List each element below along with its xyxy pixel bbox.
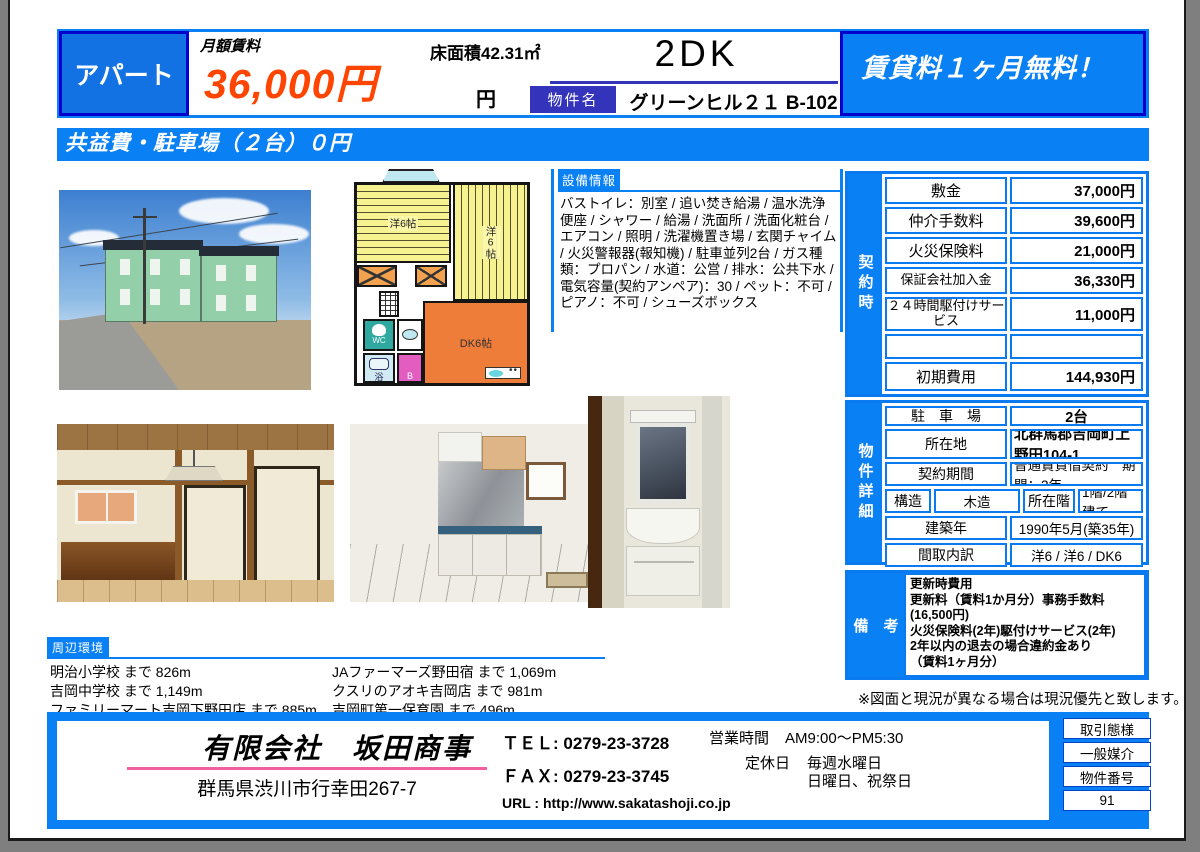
company-name: 有限会社 坂田商事 (157, 727, 517, 767)
counter-edge (438, 526, 542, 534)
fee-value: 11,000円 (1010, 297, 1143, 331)
lower-cabinets (438, 534, 542, 576)
detail-label: 建築年 (885, 516, 1007, 540)
fee-label: 火災保険料 (885, 237, 1007, 264)
fee-value: 39,600円 (1010, 207, 1143, 234)
closed-label: 定休日 (745, 752, 790, 773)
detail-label: 間取内訳 (885, 543, 1007, 567)
property-no-label: 物件番号 (1063, 766, 1151, 787)
table-row: 駐 車 場 2台 (885, 406, 1143, 426)
fee-value: 144,930円 (1010, 362, 1143, 391)
property-no-value: 91 (1063, 790, 1151, 811)
deal-type-label: 取引態様 (1063, 718, 1151, 739)
windows (206, 265, 272, 281)
detail-label: 所在地 (885, 429, 1007, 459)
table-row: 所在地 北群馬郡吉岡町上野田104-1 (885, 429, 1143, 459)
contract-fee-table: 契約時 敷金 37,000円 仲介手数料 39,600円 火災保険料 21,00… (845, 171, 1149, 397)
windows (206, 295, 272, 311)
room-dk: DK6帖 (423, 301, 527, 383)
surroundings-item: 吉岡中学校 まで 1,149m (50, 682, 317, 701)
bath-label: 浴 (374, 372, 383, 382)
hours-value: AM9:00～PM5:30 (785, 727, 903, 748)
ceiling (57, 424, 334, 450)
table-row: ２４時間駆付けサービス 11,000円 (885, 297, 1143, 331)
remarks-line: 2年以内の退去の場合違約金あり (910, 639, 1140, 655)
wall (702, 396, 722, 608)
apartment-building (105, 248, 201, 322)
surroundings-item: クスリのアオキ吉岡店 まで 981m (332, 682, 556, 701)
table-row: 火災保険料 21,000円 (885, 237, 1143, 264)
wc-label: WC (372, 336, 385, 345)
light-cord (193, 450, 195, 466)
vanity-mirror (636, 423, 690, 503)
surroundings-underline (47, 657, 605, 659)
property-name-tag: 物件名 (530, 86, 616, 113)
wash-basin (626, 508, 700, 544)
table-row: 初期費用 144,930円 (885, 362, 1143, 391)
floor-plan: 洋6帖 洋6帖 DK6帖 WC 浴 B (350, 167, 552, 393)
company-address: 群馬県渋川市行幸田267-7 (157, 774, 457, 801)
backsplash (438, 460, 524, 528)
detail-label: 駐 車 場 (885, 406, 1007, 426)
website-url: URL : http://www.sakatashoji.co.jp (502, 795, 731, 811)
detail-value: 洋6 / 洋6 / DK6 (1010, 543, 1143, 567)
detail-value: 1990年5月(築35年) (1010, 516, 1143, 540)
detail-value: 北群馬郡吉岡町上野田104-1 (1010, 429, 1143, 459)
floor-area: 床面積42.31㎡ (430, 39, 541, 64)
equipment-tag: 設備情報 (558, 169, 620, 190)
window (75, 490, 137, 524)
yen-label: 円 (476, 83, 496, 112)
room-label: 洋6帖 (482, 226, 501, 259)
equipment-text: バストイレ：別室 / 追い焚き給湯 / 温水洗浄便座 / シャワー / 給湯 /… (560, 196, 838, 312)
kitchen-window (526, 462, 566, 500)
sliding-door (184, 485, 246, 584)
remarks-line: （賃料1ヶ月分） (910, 655, 1140, 671)
table-row: 建築年 1990年5月(築35年) (885, 516, 1143, 540)
wood-post (247, 450, 254, 582)
closed-value: 日曜日、祝祭日 (807, 770, 912, 791)
cloud (179, 198, 269, 224)
layout-underline (550, 81, 838, 84)
vanity-light (630, 410, 696, 423)
fee-value: 21,000円 (1010, 237, 1143, 264)
surroundings-tag-label: 周辺環境 (52, 639, 104, 656)
exterior-photo (59, 190, 311, 390)
washroom-photo (588, 396, 730, 608)
room-label: DK6帖 (458, 335, 494, 351)
fee-label: 初期費用 (885, 362, 1007, 391)
shoe-box-icon (379, 291, 399, 317)
hours-label: 営業時間 (709, 727, 769, 748)
equipment-underline (558, 190, 840, 192)
closet-icon (357, 265, 397, 287)
details-side-header: 物件詳細 (848, 403, 882, 562)
remarks-side-label: 備 考 (853, 615, 898, 636)
washbasin-room (397, 319, 423, 351)
surroundings-item: JAファーマーズ野田宿 まで 1,069m (332, 663, 556, 682)
disclaimer-note: ※図面と現況が異なる場合は現況優先と致します。 (858, 688, 1186, 709)
detail-value: 普通賃貸借契約 期間：2年 (1010, 462, 1143, 486)
detail-label: 契約期間 (885, 462, 1007, 486)
bath-room: 浴 (363, 353, 395, 383)
floor-plan-body: 洋6帖 洋6帖 DK6帖 WC 浴 B (354, 182, 530, 386)
remarks-line: 火災保険料(2年)駆付けサービス(2年) (910, 624, 1140, 640)
remarks-line: 更新時費用 (910, 577, 1140, 593)
windows (110, 259, 196, 275)
company-underline (127, 767, 487, 770)
windows (110, 289, 196, 305)
adjacent-room-floor (61, 542, 175, 582)
room-west1: 洋6帖 (357, 185, 451, 263)
detail-value: 2台 (1010, 406, 1143, 426)
closet-icon (415, 265, 447, 287)
tel-number: ＴＥＬ: 0279-23-3728 (502, 729, 669, 754)
details-rows: 駐 車 場 2台 所在地 北群馬郡吉岡町上野田104-1 契約期間 普通賃貸借契… (882, 403, 1146, 562)
fee-label: 敷金 (885, 177, 1007, 204)
kitchen-sink-icon (485, 367, 521, 379)
fee-label (885, 334, 1007, 359)
table-row: 仲介手数料 39,600円 (885, 207, 1143, 234)
pendant-light (165, 466, 223, 481)
interior-room-photo (57, 424, 334, 602)
details-side-label: 物件詳細 (855, 443, 876, 523)
wall (602, 396, 624, 608)
detail-value: 1階/2階建て (1078, 489, 1143, 513)
remarks-side-header: 備 考 (848, 573, 904, 677)
sliding-door (254, 466, 320, 586)
flyer-page: アパート 月額賃料 36,000円 床面積42.31㎡ 円 2DK 物件名 グリ… (8, 0, 1186, 841)
apartment-building (201, 254, 277, 322)
b-label: B (407, 371, 413, 381)
vanity-cabinet (626, 546, 700, 596)
remarks-content: 更新時費用 更新料（賃料1か月分）事務手数料(16,500円) 火災保険料(2年… (904, 573, 1146, 677)
wood-floor (57, 580, 334, 602)
detail-value: 木造 (934, 489, 1020, 513)
property-name-tag-label: 物件名 (547, 89, 598, 110)
upper-cabinet (438, 432, 482, 462)
surroundings-tag: 周辺環境 (47, 637, 109, 657)
toilet-room: WC (363, 319, 395, 351)
fee-value: 37,000円 (1010, 177, 1143, 204)
deal-type-value: 一般媒介 (1063, 742, 1151, 763)
remarks-box: 備 考 更新時費用 更新料（賃料1か月分）事務手数料(16,500円) 火災保険… (845, 570, 1149, 680)
entry-mat (546, 572, 588, 588)
contract-rows: 敷金 37,000円 仲介手数料 39,600円 火災保険料 21,000円 保… (882, 174, 1146, 394)
common-fee-banner: 共益費・駐車場（２台）０円 (57, 128, 1149, 161)
remarks-line: 更新料（賃料1か月分）事務手数料(16,500円) (910, 593, 1140, 624)
rent-value: 36,000円 (204, 50, 377, 110)
layout-type: 2DK (555, 33, 838, 75)
window-bar (106, 493, 108, 521)
table-row (885, 334, 1143, 359)
fee-label: 仲介手数料 (885, 207, 1007, 234)
property-detail-table: 物件詳細 駐 車 場 2台 所在地 北群馬郡吉岡町上野田104-1 契約期間 普… (845, 400, 1149, 565)
equipment-left-rule (551, 169, 554, 332)
property-type-label: アパート (74, 56, 174, 92)
surroundings-item: 明治小学校 まで 826m (50, 663, 317, 682)
property-type-badge: アパート (59, 31, 189, 116)
equipment-tag-label: 設備情報 (562, 170, 616, 189)
equipment-right-rule (840, 169, 843, 332)
contract-side-header: 契約時 (848, 174, 882, 394)
fee-label: ２４時間駆付けサービス (885, 297, 1007, 331)
fee-label: 保証会社加入金 (885, 267, 1007, 294)
table-row: 保証会社加入金 36,330円 (885, 267, 1143, 294)
room-west2: 洋6帖 (453, 185, 527, 301)
contract-side-label: 契約時 (855, 254, 876, 314)
table-row: 間取内訳 洋6 / 洋6 / DK6 (885, 543, 1143, 567)
utility-pole (143, 208, 146, 324)
utility-pole-arm (133, 216, 157, 218)
door-frame (588, 396, 602, 608)
detail-label: 所在階 (1023, 489, 1075, 513)
property-name: グリーンヒル２１ B-102 (626, 88, 841, 115)
fee-value: 36,330円 (1010, 267, 1143, 294)
kitchen-photo (350, 424, 595, 602)
table-row: 契約期間 普通賃貸借契約 期間：2年 (885, 462, 1143, 486)
fee-value (1010, 334, 1143, 359)
fax-number: ＦＡＸ: 0279-23-3745 (502, 762, 669, 787)
footer-card: 有限会社 坂田商事 群馬県渋川市行幸田267-7 ＴＥＬ: 0279-23-37… (57, 721, 1049, 820)
balcony (382, 169, 440, 183)
upper-cabinet (482, 436, 526, 470)
promo-text: 賃貸料１ヶ月無料！ (861, 48, 1104, 85)
table-row: 敷金 37,000円 (885, 177, 1143, 204)
promo-banner: 賃貸料１ヶ月無料！ (840, 31, 1146, 116)
detail-label: 構造 (885, 489, 931, 513)
footer-band: 有限会社 坂田商事 群馬県渋川市行幸田267-7 ＴＥＬ: 0279-23-37… (47, 712, 1149, 829)
roof (103, 240, 203, 250)
roof (199, 246, 279, 256)
b-room: B (397, 353, 423, 383)
room-label: 洋6帖 (388, 216, 419, 231)
table-row: 構造 木造 所在階 1階/2階建て (885, 489, 1143, 513)
